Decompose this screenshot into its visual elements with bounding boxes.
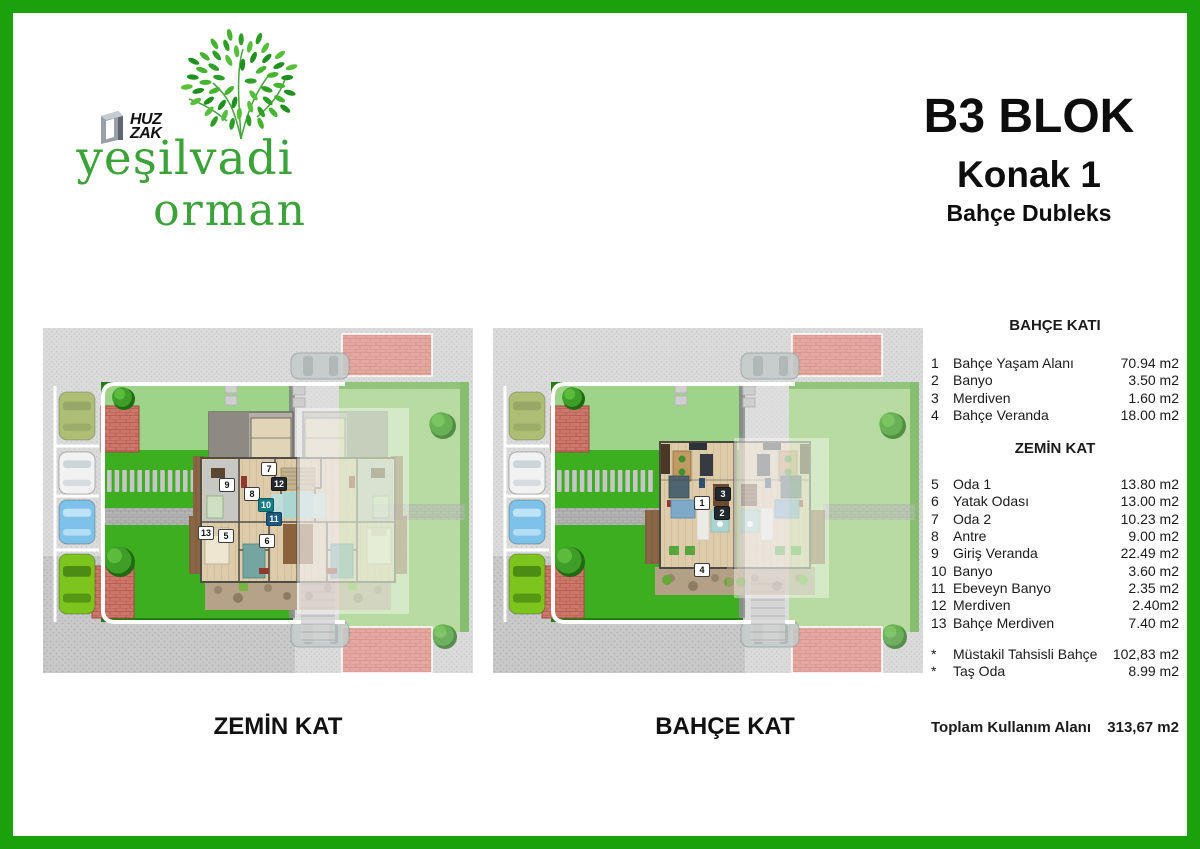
unit-title: Konak 1 <box>893 154 1165 196</box>
room-badge-12: 12 <box>271 477 287 491</box>
leaf-tree-icon <box>163 25 319 145</box>
schedule-cell-no: 5 <box>931 476 953 493</box>
schedule-cell-nm: Banyo <box>953 563 1128 580</box>
room-badge-2: 2 <box>714 506 730 520</box>
total-value: 313,67 m2 <box>1107 719 1179 736</box>
schedule-row: 9Giriş Veranda22.49 m2 <box>931 545 1179 562</box>
schedule-cell-nm: Antre <box>953 528 1128 545</box>
schedule-cell-ar: 22.49 m2 <box>1121 545 1179 562</box>
schedule-row: 7Oda 210.23 m2 <box>931 511 1179 528</box>
schedule-row: 12Merdiven2.40m2 <box>931 597 1179 614</box>
schedule-section-header: ZEMİN KAT <box>931 440 1179 457</box>
block-title: B3 BLOK <box>893 89 1165 144</box>
schedule-cell-ar: 2.35 m2 <box>1128 580 1179 597</box>
schedule-cell-no: 13 <box>931 615 953 632</box>
schedule-cell-ar: 18.00 m2 <box>1121 407 1179 424</box>
schedule-cell-nm: Taş Oda <box>953 663 1128 680</box>
schedule-cell-ar: 10.23 m2 <box>1121 511 1179 528</box>
room-badge-10: 10 <box>258 498 274 512</box>
schedule-cell-nm: Yatak Odası <box>953 493 1121 510</box>
schedule-row: *Taş Oda8.99 m2 <box>931 663 1179 680</box>
schedule-row: *Müstakil Tahsisli Bahçe102,83 m2 <box>931 646 1179 663</box>
schedule-row: 2Banyo3.50 m2 <box>931 372 1179 389</box>
room-schedule: BAHÇE KATI1Bahçe Yaşam Alanı70.94 m22Ban… <box>931 309 1179 680</box>
schedule-cell-no: * <box>931 663 953 680</box>
room-badge-11: 11 <box>266 512 282 526</box>
schedule-section-header: BAHÇE KATI <box>931 317 1179 334</box>
schedule-cell-nm: Bahçe Yaşam Alanı <box>953 355 1121 372</box>
schedule-sections: BAHÇE KATI1Bahçe Yaşam Alanı70.94 m22Ban… <box>931 317 1179 632</box>
schedule-cell-nm: Oda 2 <box>953 511 1121 528</box>
schedule-cell-ar: 8.99 m2 <box>1128 663 1179 680</box>
schedule-row: 1Bahçe Yaşam Alanı70.94 m2 <box>931 355 1179 372</box>
room-badge-4: 4 <box>694 563 710 577</box>
brochure-page: HUZ ZAK yeşilvadi orman B3 BLOK Konak 1 … <box>0 0 1200 849</box>
schedule-row: 5Oda 113.80 m2 <box>931 476 1179 493</box>
schedule-cell-nm: Müstakil Tahsisli Bahçe <box>953 646 1113 663</box>
schedule-cell-nm: Bahçe Merdiven <box>953 615 1128 632</box>
schedule-cell-no: 2 <box>931 372 953 389</box>
brand-word-1: yeşilvadi <box>63 131 307 186</box>
schedule-cell-ar: 70.94 m2 <box>1121 355 1179 372</box>
schedule-row: 8Antre9.00 m2 <box>931 528 1179 545</box>
schedule-row: 3Merdiven1.60 m2 <box>931 390 1179 407</box>
site-plan-zemin-kat: 9712810111356 <box>43 328 473 673</box>
schedule-cell-ar: 2.40m2 <box>1132 597 1179 614</box>
schedule-cell-ar: 3.50 m2 <box>1128 372 1179 389</box>
schedule-cell-ar: 13.00 m2 <box>1121 493 1179 510</box>
schedule-cell-ar: 13.80 m2 <box>1121 476 1179 493</box>
schedule-cell-no: 11 <box>931 580 953 597</box>
room-badge-1: 1 <box>694 496 710 510</box>
schedule-cell-ar: 1.60 m2 <box>1128 390 1179 407</box>
schedule-cell-no: 6 <box>931 493 953 510</box>
schedule-cell-no: 4 <box>931 407 953 424</box>
schedule-row: 6Yatak Odası13.00 m2 <box>931 493 1179 510</box>
schedule-cell-nm: Bahçe Veranda <box>953 407 1121 424</box>
room-badge-5: 5 <box>218 529 234 543</box>
schedule-row: 11Ebeveyn Banyo2.35 m2 <box>931 580 1179 597</box>
schedule-cell-no: 9 <box>931 545 953 562</box>
schedule-cell-nm: Oda 1 <box>953 476 1121 493</box>
unit-type: Bahçe Dubleks <box>893 200 1165 227</box>
schedule-cell-nm: Merdiven <box>953 597 1132 614</box>
schedule-row: 4Bahçe Veranda18.00 m2 <box>931 407 1179 424</box>
schedule-cell-nm: Merdiven <box>953 390 1128 407</box>
plan-caption-bahce: BAHÇE KAT <box>510 713 940 741</box>
schedule-row: 10Banyo3.60 m2 <box>931 563 1179 580</box>
room-badge-9: 9 <box>219 478 235 492</box>
schedule-cell-ar: 3.60 m2 <box>1128 563 1179 580</box>
schedule-row: 13Bahçe Merdiven7.40 m2 <box>931 615 1179 632</box>
site-plan-bahce-kat: 1324 <box>493 328 923 673</box>
schedule-cell-ar: 102,83 m2 <box>1113 646 1179 663</box>
schedule-cell-ar: 7.40 m2 <box>1128 615 1179 632</box>
title-block: B3 BLOK Konak 1 Bahçe Dubleks <box>893 89 1165 227</box>
schedule-cell-no: * <box>931 646 953 663</box>
schedule-cell-nm: Banyo <box>953 372 1128 389</box>
schedule-cell-no: 7 <box>931 511 953 528</box>
schedule-extras: *Müstakil Tahsisli Bahçe102,83 m2*Taş Od… <box>931 646 1179 681</box>
total-label: Toplam Kullanım Alanı <box>931 719 1091 736</box>
schedule-cell-no: 3 <box>931 390 953 407</box>
schedule-cell-nm: Ebeveyn Banyo <box>953 580 1128 597</box>
room-badge-6: 6 <box>259 534 275 548</box>
schedule-cell-no: 12 <box>931 597 953 614</box>
schedule-cell-no: 1 <box>931 355 953 372</box>
brand-word-2: orman <box>63 185 307 236</box>
schedule-cell-nm: Giriş Veranda <box>953 545 1121 562</box>
room-badge-13: 13 <box>198 526 214 540</box>
total-row: Toplam Kullanım Alanı 313,67 m2 <box>931 719 1179 736</box>
schedule-cell-no: 10 <box>931 563 953 580</box>
brand-logo: HUZ ZAK yeşilvadi orman <box>13 13 343 253</box>
schedule-cell-ar: 9.00 m2 <box>1128 528 1179 545</box>
room-badge-3: 3 <box>715 487 731 501</box>
room-badge-7: 7 <box>261 462 277 476</box>
schedule-cell-no: 8 <box>931 528 953 545</box>
plan-caption-zemin: ZEMİN KAT <box>63 713 493 741</box>
